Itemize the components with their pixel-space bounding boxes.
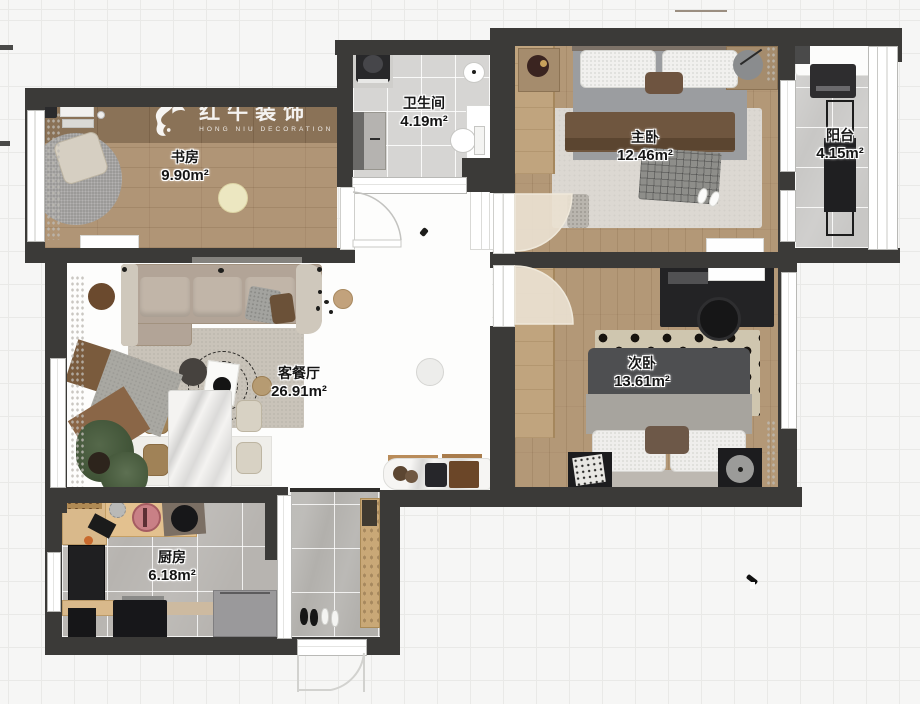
floor-vase xyxy=(416,358,444,386)
pouf-brown xyxy=(88,283,115,310)
room-name: 次卧 xyxy=(614,354,670,372)
living-window xyxy=(50,358,66,488)
bed2-bottom-wall xyxy=(490,487,802,507)
room-area: 12.46m² xyxy=(617,146,673,166)
sofa-arm-left xyxy=(121,264,138,346)
master-curtain xyxy=(766,46,777,82)
kitchen-tall-unit xyxy=(68,545,105,601)
entry-top-wall xyxy=(380,490,492,507)
balcony-window-wall xyxy=(868,46,898,250)
coffee-machine xyxy=(425,463,447,487)
plant-pot xyxy=(88,452,110,474)
brand-name-en: HONG NIU DECORATION xyxy=(199,125,333,134)
sink-drain xyxy=(472,70,476,74)
decor-scatter xyxy=(318,290,322,294)
master-balcony-window-upper xyxy=(780,80,796,172)
floor-plan-canvas: ® 红牛装饰 HONG NIU DECORATION xyxy=(0,0,920,704)
fridge-handle xyxy=(220,592,270,594)
shoe-white xyxy=(321,608,329,625)
desk-keyboard xyxy=(62,119,94,128)
study-bath-wall xyxy=(337,40,353,187)
balcony-corner-unit xyxy=(795,44,810,64)
appliance-detail xyxy=(816,86,850,91)
washing-machine-drum xyxy=(363,55,383,73)
toilet-bowl xyxy=(450,128,476,153)
master-accent-pillow xyxy=(645,72,683,94)
sofa-arm-right xyxy=(296,264,322,334)
ceiling-lamp xyxy=(218,183,248,213)
kitchen-window xyxy=(47,552,61,612)
bed2-window xyxy=(781,272,797,429)
room-area: 26.91m² xyxy=(271,382,327,402)
master-top-wall xyxy=(490,28,902,46)
study-bottom-wall xyxy=(25,248,355,263)
shoe-black xyxy=(300,608,308,625)
master-door-jamb xyxy=(493,193,515,254)
room-label-kitchen: 厨房 6.18m² xyxy=(148,548,196,586)
stock-pot xyxy=(171,505,198,532)
washing-machine-panel xyxy=(358,79,388,83)
shoe-white xyxy=(331,610,339,627)
kitchen-black-unit xyxy=(68,608,96,637)
bed2-accent-pillow xyxy=(645,426,689,454)
dimension-line xyxy=(675,10,727,12)
vanity-handle xyxy=(370,138,380,140)
bathroom-top-wall xyxy=(335,40,497,55)
room-area: 4.15m² xyxy=(816,144,864,164)
entry-opening-lintel xyxy=(290,488,380,492)
sofa-pillow-brown xyxy=(269,293,296,325)
kitchen-sliding-door xyxy=(277,495,292,639)
kitchen-top-wall xyxy=(53,487,288,503)
bedrooms-divider-wall xyxy=(490,252,778,268)
bed2-curtain xyxy=(766,420,777,490)
bed2-left-wall xyxy=(490,326,515,492)
entry-door-arc xyxy=(298,653,364,692)
room-area: 6.18m² xyxy=(148,566,196,586)
stray-mark xyxy=(750,582,755,589)
entry-right-wall xyxy=(380,492,400,655)
room-label-master-bedroom: 主卧 12.46m² xyxy=(617,128,673,166)
sofa-cushion xyxy=(140,277,190,317)
record-center xyxy=(738,467,743,472)
wall-shelf xyxy=(706,238,764,253)
edge-tick xyxy=(0,141,10,146)
bed2-door-jamb xyxy=(493,265,515,327)
wall-hook xyxy=(317,267,322,272)
room-label-bathroom: 卫生间 4.19m² xyxy=(400,94,448,132)
room-label-balcony: 阳台 4.15m² xyxy=(816,126,864,164)
room-name: 主卧 xyxy=(617,128,673,146)
room-area: 4.19m² xyxy=(400,112,448,132)
spice-jar xyxy=(84,536,93,545)
decor-scatter xyxy=(324,300,329,304)
sideboard-bowl xyxy=(405,470,418,483)
desk-shelf xyxy=(708,266,765,281)
wall-hook xyxy=(218,268,224,273)
dining-chair-right xyxy=(236,400,262,432)
room-label-study: 书房 9.90m² xyxy=(161,148,209,186)
kitchen-mat xyxy=(165,602,213,615)
bed2-wardrobe xyxy=(515,268,555,438)
room-label-second-bedroom: 次卧 13.61m² xyxy=(614,354,670,392)
desk-board xyxy=(60,106,94,117)
room-name: 阳台 xyxy=(816,126,864,144)
study-top-wall xyxy=(25,88,345,107)
bath-bottom-stub xyxy=(462,158,500,192)
study-window xyxy=(27,110,45,242)
lamp-knob xyxy=(540,60,547,67)
dining-chair-right xyxy=(236,442,262,474)
shoe-black xyxy=(310,609,318,626)
curtain-left xyxy=(70,275,84,490)
room-name: 卫生间 xyxy=(400,94,448,112)
decor-scatter xyxy=(329,310,333,314)
room-area: 13.61m² xyxy=(614,372,670,392)
entry-door-threshold xyxy=(297,639,367,656)
study-curtain xyxy=(46,112,60,240)
bench-item xyxy=(362,500,377,526)
balcony-bottom-wall xyxy=(778,248,900,263)
room-label-living-dining: 客餐厅 26.91m² xyxy=(271,364,327,402)
nightstand-cloth xyxy=(572,454,606,486)
toilet-tank xyxy=(474,126,485,155)
decor-scatter xyxy=(316,306,320,311)
refrigerator xyxy=(213,590,277,637)
study-door-jamb xyxy=(340,187,355,250)
office-chair xyxy=(697,297,741,341)
dining-table-marble xyxy=(168,390,232,488)
desk-items xyxy=(668,272,708,284)
sink-bars xyxy=(143,508,147,527)
sofa-cushion xyxy=(193,277,242,317)
room-name: 书房 xyxy=(161,148,209,166)
bath-vanity-side xyxy=(352,112,364,170)
bathroom-sliding-door xyxy=(352,177,467,194)
master-balcony-window-lower xyxy=(780,190,796,242)
round-table xyxy=(733,50,763,80)
desk-cup xyxy=(97,111,105,119)
stool-round xyxy=(252,376,272,396)
room-name: 客餐厅 xyxy=(271,364,327,382)
balcony-appliance xyxy=(810,64,856,98)
side-table xyxy=(333,289,353,309)
wall-hook xyxy=(122,267,127,272)
drying-rack xyxy=(109,501,126,518)
clothes-pile xyxy=(567,194,589,228)
sideboard-tray xyxy=(449,461,479,488)
room-name: 厨房 xyxy=(148,548,196,566)
room-area: 9.90m² xyxy=(161,166,209,186)
sofa-wall-shelf xyxy=(192,257,302,263)
edge-tick xyxy=(0,45,13,50)
coffee-table-round xyxy=(179,358,207,386)
